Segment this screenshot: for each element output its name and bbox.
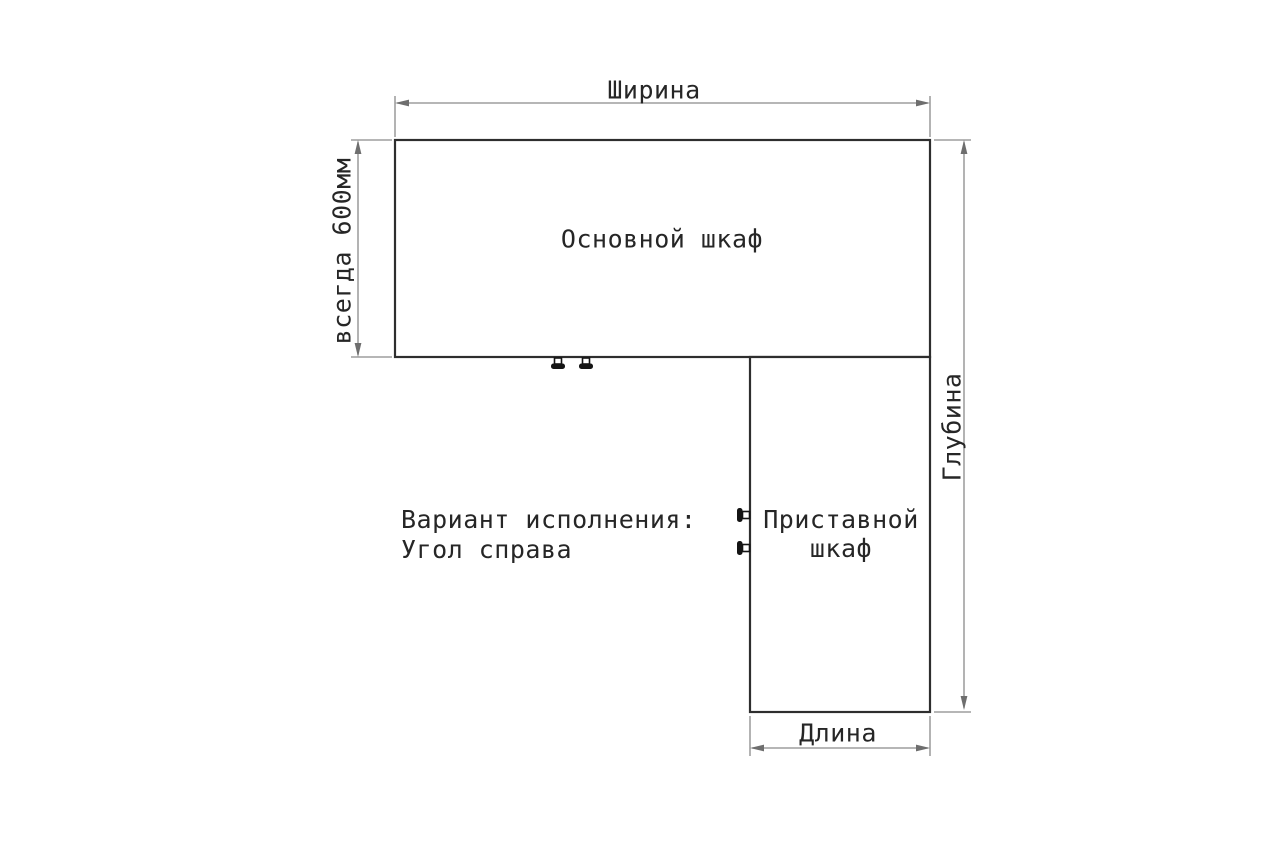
diagram-linework xyxy=(0,0,1280,853)
main-cabinet-label: Основной шкаф xyxy=(561,225,763,254)
connector-icon xyxy=(551,358,565,369)
connector-icon xyxy=(737,541,750,555)
arrowhead-down-icon xyxy=(961,696,968,710)
connector-neck xyxy=(583,358,590,364)
left-depth-dimension xyxy=(351,140,392,357)
arrowhead-right-icon xyxy=(916,100,930,107)
width-dimension-label: Ширина xyxy=(607,76,700,105)
connector-neck xyxy=(743,545,750,552)
arrowhead-left-icon xyxy=(750,745,764,752)
always-600-label: всегда 600мм xyxy=(328,158,357,345)
arrowhead-down-icon xyxy=(355,343,362,357)
length-dimension-label: Длина xyxy=(799,719,877,748)
connector-neck xyxy=(743,512,750,519)
variant-note: Вариант исполнения: Угол справа xyxy=(401,505,696,565)
depth-dimension-label: Глубина xyxy=(938,373,967,482)
connector-head xyxy=(551,364,565,370)
connector-head xyxy=(579,364,593,370)
arrowhead-up-icon xyxy=(355,140,362,154)
connector-icon xyxy=(579,358,593,369)
connector-head xyxy=(737,508,743,522)
arrowhead-right-icon xyxy=(916,745,930,752)
connector-icon xyxy=(737,508,750,522)
arrowhead-up-icon xyxy=(961,140,968,154)
arrowhead-left-icon xyxy=(395,100,409,107)
connector-head xyxy=(737,541,743,555)
diagram-canvas: Ширина Основной шкаф всегда 600мм Глубин… xyxy=(0,0,1280,853)
side-cabinet-label: Приставной шкаф xyxy=(763,505,919,563)
connector-neck xyxy=(555,358,562,364)
